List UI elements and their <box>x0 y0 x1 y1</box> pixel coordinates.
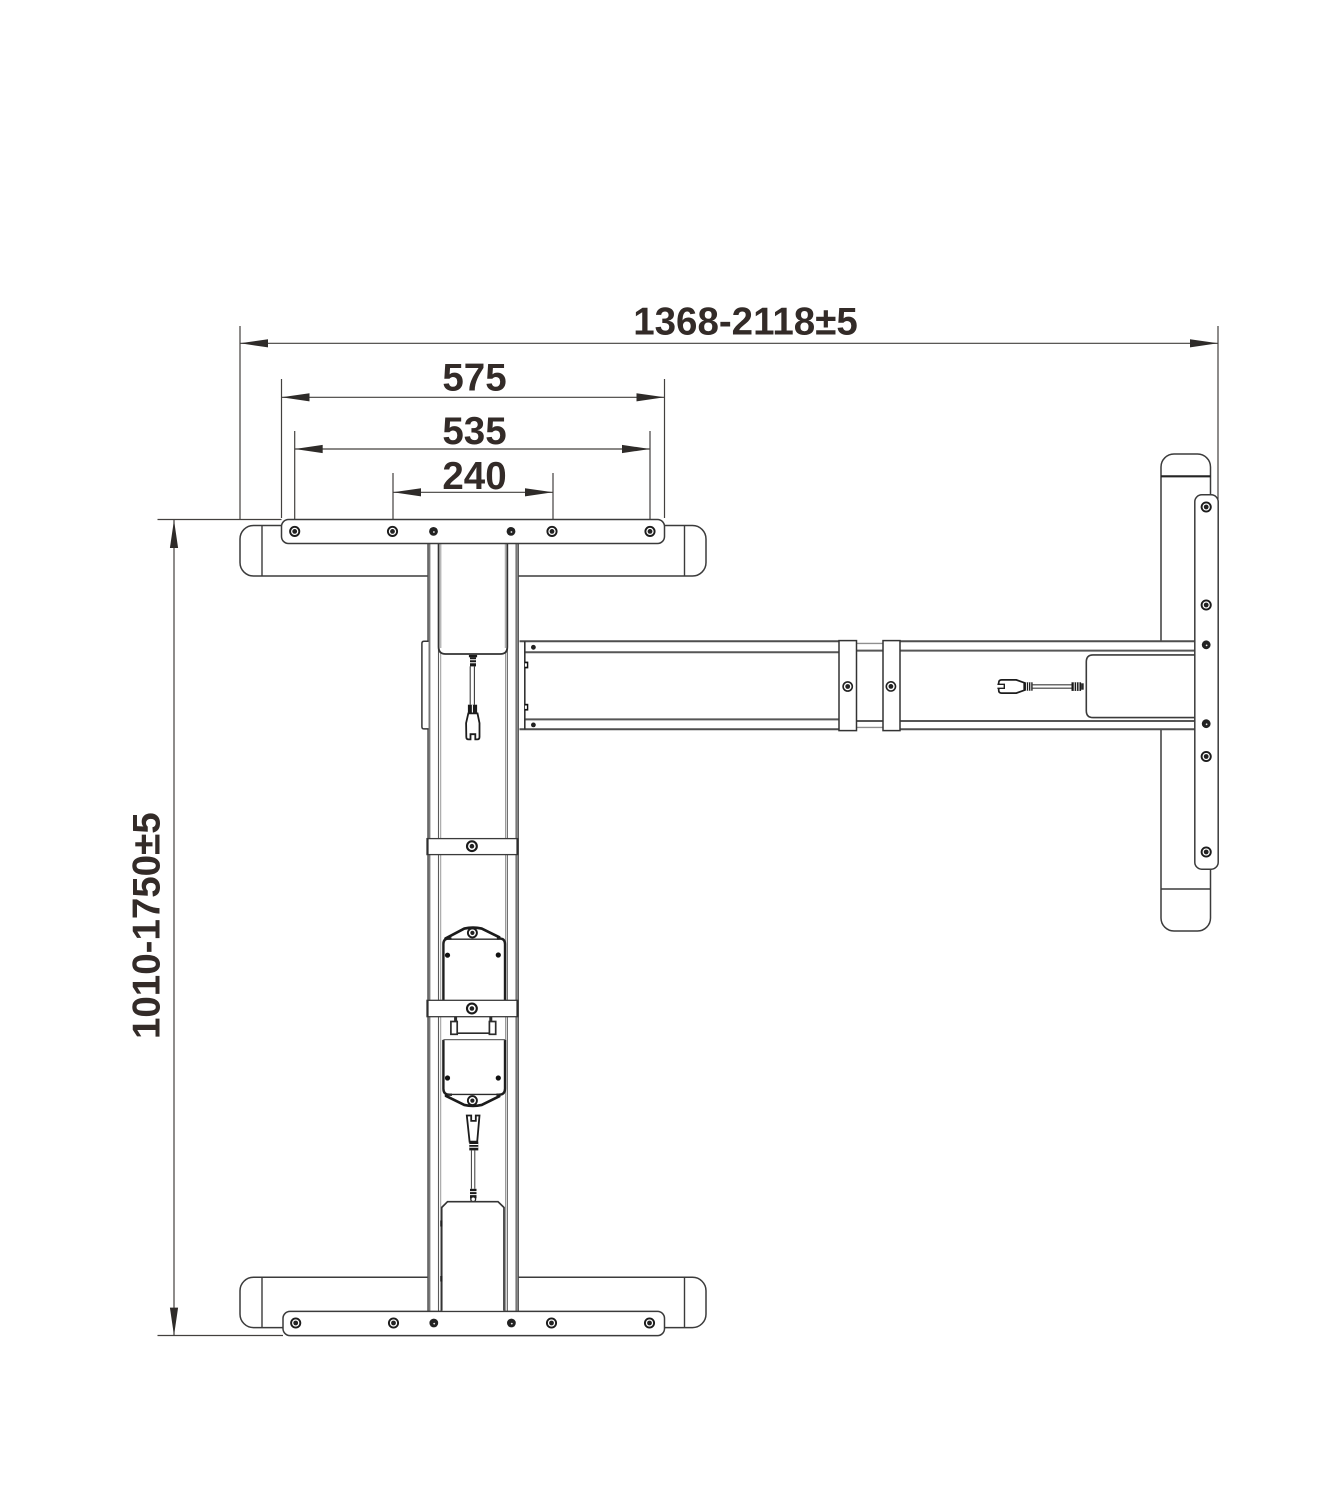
svg-text:240: 240 <box>442 455 506 498</box>
svg-text:1368-2118±5: 1368-2118±5 <box>633 301 858 344</box>
svg-text:535: 535 <box>442 410 506 453</box>
svg-text:1010-1750±5: 1010-1750±5 <box>126 812 169 1039</box>
svg-text:575: 575 <box>442 357 506 400</box>
